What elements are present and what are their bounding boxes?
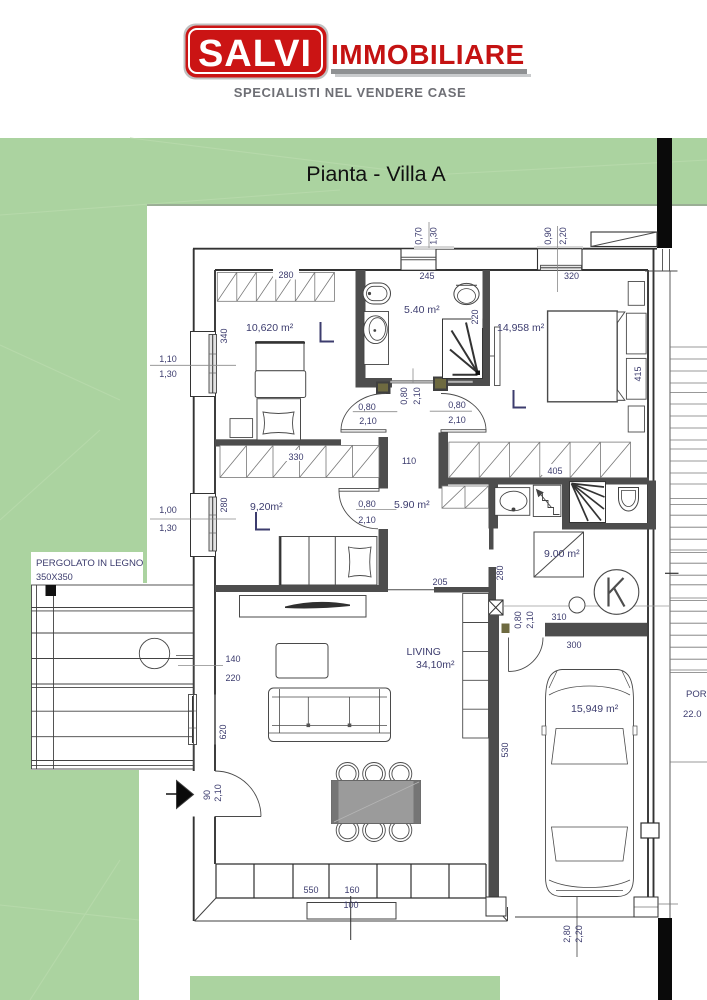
- svg-text:1,30: 1,30: [159, 369, 177, 379]
- svg-text:2,10: 2,10: [412, 387, 422, 405]
- svg-text:1,30: 1,30: [159, 523, 177, 533]
- svg-text:15,949 m²: 15,949 m²: [571, 703, 619, 715]
- svg-text:Pianta - Villa A: Pianta - Villa A: [306, 162, 446, 186]
- svg-text:110: 110: [402, 456, 416, 466]
- svg-text:0,70: 0,70: [414, 227, 424, 245]
- svg-text:620: 620: [218, 724, 228, 739]
- svg-text:2,10: 2,10: [525, 611, 535, 629]
- svg-text:280: 280: [219, 497, 229, 512]
- svg-text:SPECIALISTI NEL VENDERE CASE: SPECIALISTI NEL VENDERE CASE: [234, 85, 467, 100]
- svg-text:2,10: 2,10: [358, 515, 376, 525]
- svg-text:14,958 m²: 14,958 m²: [497, 322, 545, 334]
- svg-text:330: 330: [288, 452, 303, 462]
- svg-text:280: 280: [278, 270, 293, 280]
- svg-text:SALVI: SALVI: [198, 33, 312, 75]
- svg-text:1,00: 1,00: [159, 505, 177, 515]
- svg-text:140: 140: [225, 654, 240, 664]
- svg-text:280: 280: [495, 565, 505, 580]
- svg-text:90: 90: [202, 790, 212, 800]
- svg-text:34,10m²: 34,10m²: [416, 659, 455, 671]
- svg-text:0,90: 0,90: [543, 227, 553, 245]
- svg-text:IMMOBILIARE: IMMOBILIARE: [331, 39, 525, 70]
- svg-text:1,10: 1,10: [159, 354, 177, 364]
- svg-text:245: 245: [419, 271, 434, 281]
- svg-text:320: 320: [564, 271, 579, 281]
- svg-text:0,80: 0,80: [358, 499, 376, 509]
- svg-text:0,80: 0,80: [448, 400, 466, 410]
- svg-text:2,20: 2,20: [558, 227, 568, 245]
- svg-text:2,10: 2,10: [359, 416, 377, 426]
- svg-text:LIVING: LIVING: [407, 646, 441, 658]
- svg-text:530: 530: [500, 742, 510, 757]
- svg-text:2,20: 2,20: [574, 925, 584, 943]
- svg-text:100: 100: [343, 900, 358, 910]
- svg-text:POR: POR: [686, 689, 707, 700]
- svg-text:9,20m²: 9,20m²: [250, 501, 283, 513]
- svg-text:0,80: 0,80: [358, 402, 376, 412]
- svg-text:205: 205: [432, 577, 447, 587]
- svg-text:310: 310: [551, 612, 566, 622]
- svg-text:PERGOLATO IN LEGNO: PERGOLATO IN LEGNO: [36, 558, 143, 569]
- svg-text:9.00 m²: 9.00 m²: [544, 548, 580, 560]
- svg-text:5.90 m²: 5.90 m²: [394, 499, 430, 511]
- svg-text:300: 300: [566, 640, 581, 650]
- svg-text:405: 405: [547, 466, 562, 476]
- svg-text:350X350: 350X350: [36, 572, 73, 582]
- svg-text:0,80: 0,80: [513, 611, 523, 629]
- svg-text:1,30: 1,30: [429, 227, 439, 245]
- svg-text:415: 415: [633, 366, 643, 381]
- svg-text:2,80: 2,80: [562, 925, 572, 943]
- svg-text:220: 220: [225, 673, 240, 683]
- svg-text:340: 340: [219, 328, 229, 343]
- svg-text:2,10: 2,10: [448, 415, 466, 425]
- svg-text:0,80: 0,80: [399, 387, 409, 405]
- svg-text:2,10: 2,10: [213, 784, 223, 802]
- svg-text:10,620 m²: 10,620 m²: [246, 322, 294, 334]
- svg-text:22.0: 22.0: [683, 709, 702, 720]
- svg-text:220: 220: [470, 309, 480, 324]
- svg-text:550: 550: [303, 885, 318, 895]
- svg-text:160: 160: [344, 885, 359, 895]
- svg-text:5.40 m²: 5.40 m²: [404, 304, 440, 316]
